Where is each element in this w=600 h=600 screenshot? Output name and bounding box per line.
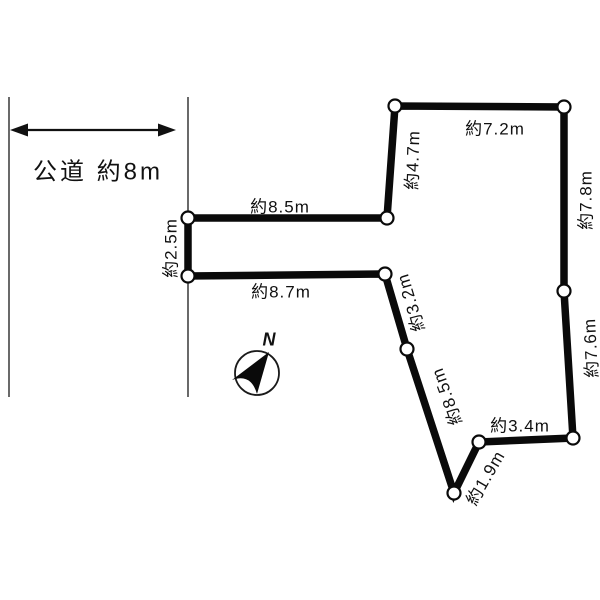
vertex-marker xyxy=(558,285,571,298)
vertex-marker xyxy=(558,101,571,114)
edge-length-bottom: 約3.4m xyxy=(490,412,550,437)
compass xyxy=(232,351,279,395)
vertex-marker xyxy=(473,436,486,449)
compass-north-label: N xyxy=(263,330,276,351)
edge-length-flag-left: 約4.7m xyxy=(397,130,424,191)
vertex-marker xyxy=(182,270,195,283)
vertex-marker xyxy=(567,432,580,445)
vertex-marker xyxy=(182,212,195,225)
arrow-head-left-icon xyxy=(10,124,28,137)
vertex-marker xyxy=(389,100,402,113)
edge-length-corridor-top: 約8.5m xyxy=(250,193,310,218)
arrow-head-right-icon xyxy=(158,124,176,137)
road-width-arrow xyxy=(10,124,176,137)
edge-length-top: 約7.2m xyxy=(465,115,525,140)
vertex-marker xyxy=(381,212,394,225)
vertex-marker xyxy=(401,343,414,356)
road-label: 公道 約8m xyxy=(33,152,163,187)
vertex-marker xyxy=(448,487,461,500)
edge-length-right-lower: 約7.6m xyxy=(575,317,600,378)
edge-length-frontage: 約2.5m xyxy=(157,218,182,278)
edge-length-right-upper: 約7.8m xyxy=(572,170,597,230)
land-plot-diagram: 公道 約8m N 約8.5m 約4.7m 約7.2m 約7.8m 約7.6m 約… xyxy=(0,0,600,600)
edge-length-corridor-bottom: 約8.7m xyxy=(251,278,311,303)
